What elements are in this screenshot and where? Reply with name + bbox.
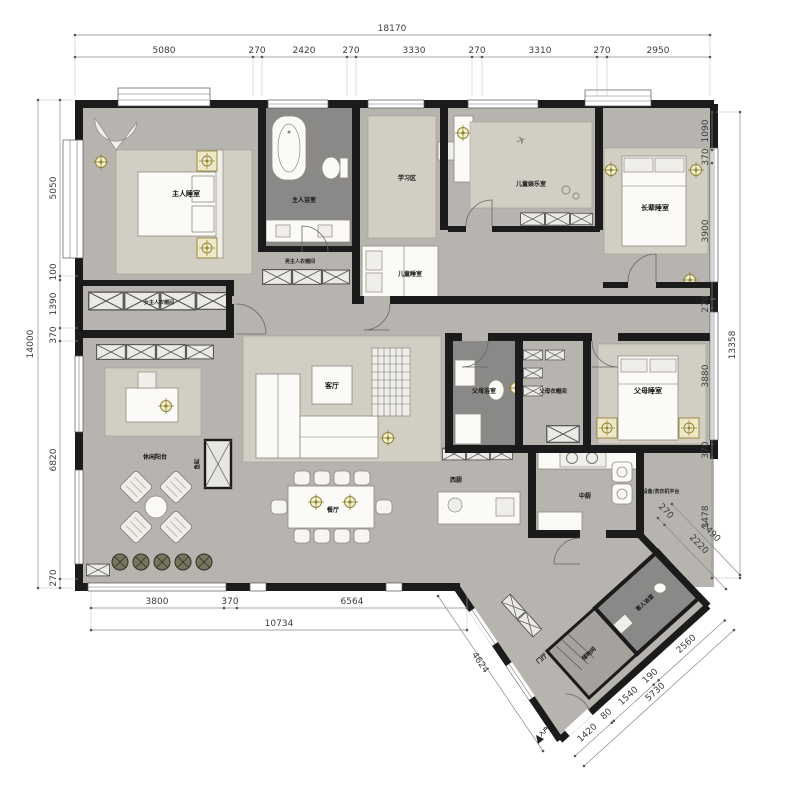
dim-right-total: 13358	[728, 330, 738, 359]
dim-entry-seg: 80	[599, 707, 614, 722]
dim-right-seg: 370	[701, 148, 711, 165]
dim-top-total: 18170	[378, 24, 407, 34]
dim-top-seg: 3330	[403, 46, 426, 56]
dim-left-seg: 100	[49, 263, 59, 280]
dim-left-seg: 270	[49, 569, 59, 586]
dim-left: 14000 5050 100 1390 370 6820 270	[26, 99, 61, 590]
dim-top-seg: 2420	[293, 46, 316, 56]
dim-bottom-seg: 3800	[146, 597, 169, 607]
dim-top-seg: 270	[593, 46, 610, 56]
dim-left-seg: 1390	[49, 292, 59, 315]
room-label-fish-tank: 鱼缸	[193, 458, 201, 470]
floor-plan-canvas: ✈	[0, 0, 800, 800]
dim-top-seg: 270	[468, 46, 485, 56]
dim-top: 18170 5080 270 2420 270 3330 270 3310 27…	[74, 24, 712, 58]
dim-right-seg: 3880	[701, 364, 711, 387]
room-label-master-bedroom: 主人睡室	[172, 189, 200, 198]
bay-window-top-right	[585, 90, 651, 106]
dim-bottom-total: 10734	[265, 619, 294, 629]
room-label-female-closet: 女主人衣帽间	[144, 299, 174, 306]
dim-right-seg: 3900	[701, 219, 711, 242]
tv-shelf-grid	[372, 348, 410, 416]
room-label-kitchen: 中厨	[579, 492, 591, 500]
dim-bottom-diagonal: 4624	[469, 651, 490, 676]
dim-bottom-seg: 370	[221, 597, 238, 607]
room-label-parents-closet: 父母衣帽间	[538, 387, 567, 395]
male-closet-furniture	[263, 270, 350, 285]
room-label-west-kitchen: 西厨	[450, 476, 462, 484]
floor-plan-page: ✈	[0, 0, 800, 800]
room-label-dining: 餐厅	[326, 506, 339, 514]
dim-top-seg: 3310	[529, 46, 552, 56]
living-room-furniture	[243, 336, 441, 462]
dim-left-seg: 5050	[49, 176, 59, 199]
room-label-children-play: 儿童娱乐室	[515, 180, 546, 188]
dim-left-seg: 6820	[49, 448, 59, 471]
room-label-balcony: 休闲阳台	[142, 453, 167, 461]
dim-left-total: 14000	[26, 329, 36, 358]
dim-top-seg: 2950	[647, 46, 670, 56]
room-label-male-closet: 男主人衣帽间	[284, 258, 315, 265]
room-label-children-bedroom: 儿童睡室	[397, 270, 422, 278]
fish-tank	[205, 440, 231, 488]
dim-right-seg: 1090	[701, 119, 711, 142]
room-label-study: 学习区	[398, 174, 416, 182]
dim-top-seg: 5080	[153, 46, 176, 56]
master-door-gap	[232, 296, 266, 304]
dim-right-seg: 370	[701, 441, 711, 458]
room-label-living: 客厅	[324, 381, 339, 390]
dim-bottom-seg: 6564	[341, 597, 364, 607]
dim-top-seg: 270	[342, 46, 359, 56]
room-label-equipment: 设备/洗衣机平台	[643, 488, 680, 495]
room-label-parents-bedroom: 父母睡室	[633, 386, 662, 395]
dim-left-seg: 370	[49, 326, 59, 343]
dim-right-seg: 270	[701, 295, 711, 312]
room-label-parents-bath: 父母浴室	[471, 387, 496, 395]
dim-top-seg: 270	[248, 46, 265, 56]
room-label-master-bath: 主人浴室	[292, 196, 316, 204]
room-label-elder-bedroom: 长辈睡室	[641, 203, 669, 212]
bay-window-top-left	[118, 88, 210, 106]
